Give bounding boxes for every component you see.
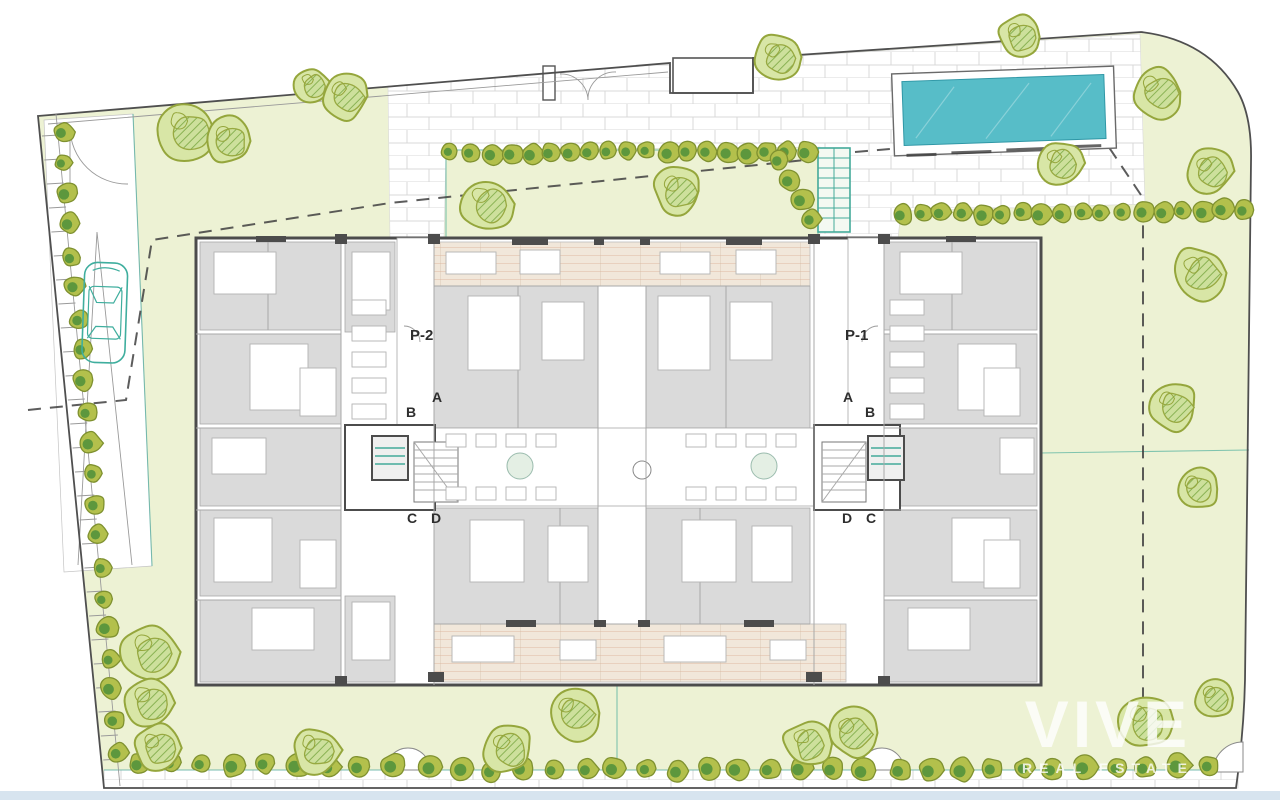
unit-a-right-label: A	[843, 389, 853, 405]
plan-detail	[792, 764, 803, 775]
plan-detail	[680, 147, 689, 156]
plan-detail	[995, 210, 1004, 219]
plan-detail	[506, 487, 526, 500]
plan-detail	[476, 487, 496, 500]
plan-detail	[895, 211, 905, 221]
hedge-shrub	[1114, 203, 1130, 220]
hedge-shrub	[545, 760, 564, 779]
plan-detail	[225, 761, 237, 773]
furniture-item	[984, 540, 1020, 588]
plan-detail	[808, 234, 820, 244]
plan-detail	[536, 487, 556, 500]
plan-detail	[195, 760, 204, 769]
plan-detail	[428, 234, 440, 244]
hedge-shrub	[1134, 202, 1155, 222]
plan-detail	[111, 749, 121, 759]
plan-detail	[953, 765, 965, 777]
plan-detail	[352, 300, 386, 315]
hedge-shrub	[1199, 757, 1218, 776]
plan-detail	[146, 734, 176, 763]
plan-detail	[87, 470, 96, 479]
plan-detail	[1156, 208, 1166, 218]
plan-detail	[352, 404, 386, 419]
plan-detail	[976, 210, 986, 220]
plan-detail	[423, 762, 435, 774]
plan-detail	[762, 765, 772, 775]
plan-detail	[799, 148, 809, 158]
furniture-item	[984, 368, 1020, 416]
plan-detail	[594, 238, 604, 245]
plan-detail	[606, 764, 617, 775]
plan-detail	[640, 238, 650, 245]
plan-detail	[173, 117, 209, 150]
plan-detail	[476, 434, 496, 447]
plan-detail	[602, 147, 611, 156]
plan-detail	[335, 676, 347, 686]
plan-detail	[855, 766, 867, 778]
tree	[755, 35, 802, 80]
furniture-item	[660, 252, 710, 274]
unit-d-left-label: D	[431, 510, 441, 526]
plan-detail	[384, 761, 396, 773]
entrance-canopy	[673, 58, 753, 93]
unit-c-left-label: C	[407, 510, 417, 526]
plan-detail	[59, 189, 70, 200]
plan-detail	[746, 434, 766, 447]
plan-detail	[740, 149, 751, 160]
plan-detail	[661, 149, 671, 159]
pool-water	[902, 74, 1106, 145]
elevator-right	[868, 436, 904, 480]
plan-detail	[716, 487, 736, 500]
plan-detail	[543, 149, 553, 159]
plan-detail	[67, 282, 77, 292]
plan-detail	[428, 672, 444, 682]
furniture-item	[452, 636, 514, 662]
plan-detail	[1237, 206, 1246, 215]
hedge-shrub	[85, 496, 104, 514]
hedge-shrub	[851, 758, 875, 781]
plan-detail	[99, 623, 110, 634]
plan-detail	[1196, 208, 1207, 219]
furniture-item	[664, 636, 726, 662]
furniture-item	[658, 296, 710, 370]
furniture-item	[446, 252, 496, 274]
plan-detail	[80, 409, 89, 418]
hedge-shrub	[1154, 202, 1174, 223]
plan-detail	[75, 345, 85, 355]
furniture-item	[214, 518, 272, 582]
plan-detail	[83, 439, 94, 450]
plan-detail	[594, 620, 606, 627]
plan-detail	[1215, 205, 1225, 215]
plan-detail	[546, 766, 555, 775]
plan-detail	[88, 501, 98, 511]
hedge-shrub	[462, 144, 480, 162]
tree	[157, 104, 214, 161]
hedge-shrub	[638, 142, 654, 158]
hedge-shrub	[770, 150, 787, 170]
plan-detail	[946, 236, 976, 242]
plan-detail	[1033, 210, 1043, 220]
plan-detail	[351, 763, 362, 774]
hedge-shrub	[982, 759, 1001, 778]
plan-detail	[726, 238, 762, 245]
furniture-item	[300, 368, 336, 416]
plan-detail	[640, 765, 649, 774]
hedge-shrub	[57, 183, 77, 203]
plan-detail	[621, 147, 630, 156]
hedge-shrub	[441, 143, 457, 160]
hedge-shrub	[78, 403, 97, 421]
patio-circle-right	[751, 453, 777, 479]
furniture-item	[212, 438, 266, 474]
plan-detail	[444, 148, 452, 156]
plan-detail	[806, 672, 822, 682]
plan-detail	[890, 352, 924, 367]
watermark: VIVE REAL ESTATE	[1022, 687, 1194, 776]
plan-detail	[137, 689, 167, 719]
plan-detail	[57, 159, 65, 167]
plan-detail	[686, 487, 706, 500]
plan-detail	[916, 210, 925, 219]
unit-d-right-label: D	[842, 510, 852, 526]
plan-detail	[352, 352, 386, 367]
furniture-item	[730, 302, 772, 360]
plan-detail	[454, 764, 466, 776]
plan-detail	[1176, 207, 1184, 215]
plan-detail	[352, 326, 386, 341]
plan-detail	[103, 684, 114, 695]
plan-detail	[563, 149, 573, 159]
hedge-shrub	[699, 757, 721, 780]
unit-b-left-label: B	[406, 404, 416, 420]
plan-detail	[1016, 208, 1025, 217]
hedge-shrub	[603, 758, 627, 779]
hedge-shrub	[894, 204, 911, 225]
plan-detail	[772, 156, 781, 165]
hedge-shrub	[600, 141, 616, 159]
furniture-item	[542, 302, 584, 360]
plan-detail	[464, 149, 473, 158]
hedge-shrub	[1014, 202, 1032, 220]
plan-detail	[256, 236, 286, 242]
plan-detail	[104, 656, 113, 665]
plan-detail	[580, 765, 590, 775]
plan-detail	[794, 195, 805, 206]
hedge-shrub	[503, 145, 524, 164]
plan-detail	[701, 763, 713, 775]
furniture-item	[470, 520, 524, 582]
plan-detail	[62, 219, 72, 229]
furniture-item	[908, 608, 970, 650]
plan-detail	[824, 765, 835, 776]
plan-detail	[352, 378, 386, 393]
unit-b-right-label: B	[865, 404, 875, 420]
plan-detail	[776, 487, 796, 500]
elevator-left	[372, 436, 408, 480]
plan-detail	[985, 765, 995, 775]
portal-right-label: P-1	[845, 327, 868, 344]
plan-detail	[446, 434, 466, 447]
plan-detail	[107, 716, 117, 726]
plan-detail	[1136, 208, 1146, 218]
building	[196, 234, 1041, 686]
plan-detail	[878, 234, 890, 244]
plan-detail	[97, 596, 105, 604]
plan-detail	[890, 300, 924, 315]
plan-detail	[506, 620, 536, 627]
gate-post	[543, 66, 555, 100]
plan-detail	[1077, 209, 1086, 218]
plan-detail	[96, 564, 105, 573]
plan-detail	[536, 434, 556, 447]
furniture-item	[1000, 438, 1034, 474]
tree	[483, 726, 529, 772]
furniture-item	[900, 252, 962, 294]
plan-detail	[512, 238, 548, 245]
plan-detail	[782, 176, 792, 186]
plan-detail	[1095, 210, 1103, 218]
plan-detail	[892, 766, 903, 777]
plan-detail	[446, 487, 466, 500]
plan-detail	[258, 759, 268, 769]
hedge-shrub	[1235, 200, 1254, 220]
plan-detail	[72, 316, 82, 326]
plan-detail	[216, 128, 244, 155]
furniture-item	[520, 250, 560, 274]
swimming-pool	[892, 66, 1117, 156]
plan-detail	[641, 147, 649, 155]
plan-detail	[524, 150, 535, 161]
plan-detail	[504, 150, 514, 160]
unit-a-left-label: A	[432, 389, 442, 405]
furniture-item	[468, 296, 520, 370]
hedge-shrub	[418, 756, 442, 777]
street-edge	[0, 791, 1280, 800]
plan-detail	[305, 739, 335, 764]
hedge-shrub	[105, 712, 124, 729]
furniture-item	[560, 640, 596, 660]
watermark-brand: VIVE	[1025, 687, 1191, 761]
furniture-item	[252, 608, 314, 650]
plan-detail	[759, 147, 768, 156]
plan-detail	[65, 254, 74, 263]
plan-detail	[878, 676, 890, 686]
plan-detail	[638, 620, 650, 627]
plan-detail	[75, 376, 85, 386]
plan-detail	[335, 234, 347, 244]
tree	[207, 115, 250, 162]
furniture-item	[250, 344, 308, 410]
plan-detail	[1202, 762, 1212, 772]
plan-detail	[890, 404, 924, 419]
plan-detail	[744, 620, 774, 627]
plan-detail	[582, 148, 591, 157]
site-plan: P-2 A B C D P-1 A B D C VIVE REAL ESTATE	[0, 0, 1280, 800]
plan-detail	[91, 530, 100, 539]
plan-detail	[1116, 208, 1124, 216]
plan-detail	[890, 326, 924, 341]
portal-left-label: P-2	[410, 327, 433, 344]
plan-detail	[506, 434, 526, 447]
plan-detail	[776, 434, 796, 447]
hedge-shrub	[791, 189, 814, 209]
plan-detail	[890, 378, 924, 393]
furniture-item	[300, 540, 336, 588]
hedge-shrub	[348, 757, 369, 777]
unit-c-right-label: C	[866, 510, 876, 526]
furniture-item	[214, 252, 276, 294]
plan-detail	[729, 764, 740, 775]
plan-detail	[56, 128, 66, 138]
plan-detail	[1055, 210, 1064, 219]
furniture-item	[752, 526, 792, 582]
plan-detail	[956, 209, 966, 219]
plan-detail	[746, 487, 766, 500]
plan-detail	[720, 148, 730, 158]
furniture-item	[682, 520, 736, 582]
hedge-shrub	[678, 141, 696, 161]
patio-circle-left	[507, 453, 533, 479]
plan-detail	[700, 148, 709, 157]
plan-detail	[934, 209, 943, 218]
hedge-shrub	[561, 143, 581, 161]
stair-core-right	[814, 425, 904, 510]
hedge-shrub	[890, 759, 910, 779]
outdoor-stair	[818, 148, 850, 232]
plan-detail	[686, 434, 706, 447]
furniture-item	[352, 602, 390, 660]
plan-detail	[922, 766, 934, 778]
furniture-item	[736, 250, 776, 274]
plan-detail	[670, 767, 681, 778]
plan-detail	[716, 434, 736, 447]
plan-detail	[485, 150, 495, 160]
watermark-tagline: REAL ESTATE	[1022, 760, 1194, 776]
furniture-item	[548, 526, 588, 582]
plan-detail	[804, 215, 813, 224]
furniture-item	[770, 640, 806, 660]
